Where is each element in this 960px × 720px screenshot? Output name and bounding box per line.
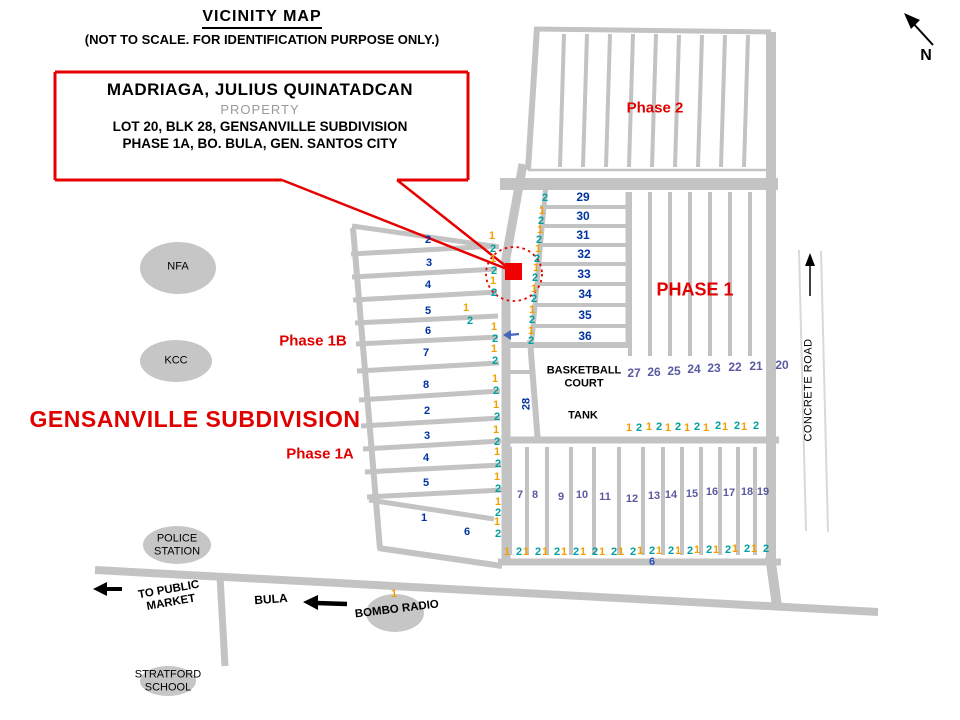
- vicinity-map: VICINITY MAP (NOT TO SCALE. FOR IDENTIFI…: [0, 0, 960, 720]
- to-public-market-arrow-icon: [93, 582, 122, 596]
- small-blue-arrow-icon: [503, 330, 519, 340]
- arrow-layer: [0, 0, 960, 720]
- bula-road-arrow-icon: [303, 595, 347, 610]
- north-arrow-icon: [904, 13, 933, 45]
- concrete-road-direction-arrow-icon: [805, 253, 815, 296]
